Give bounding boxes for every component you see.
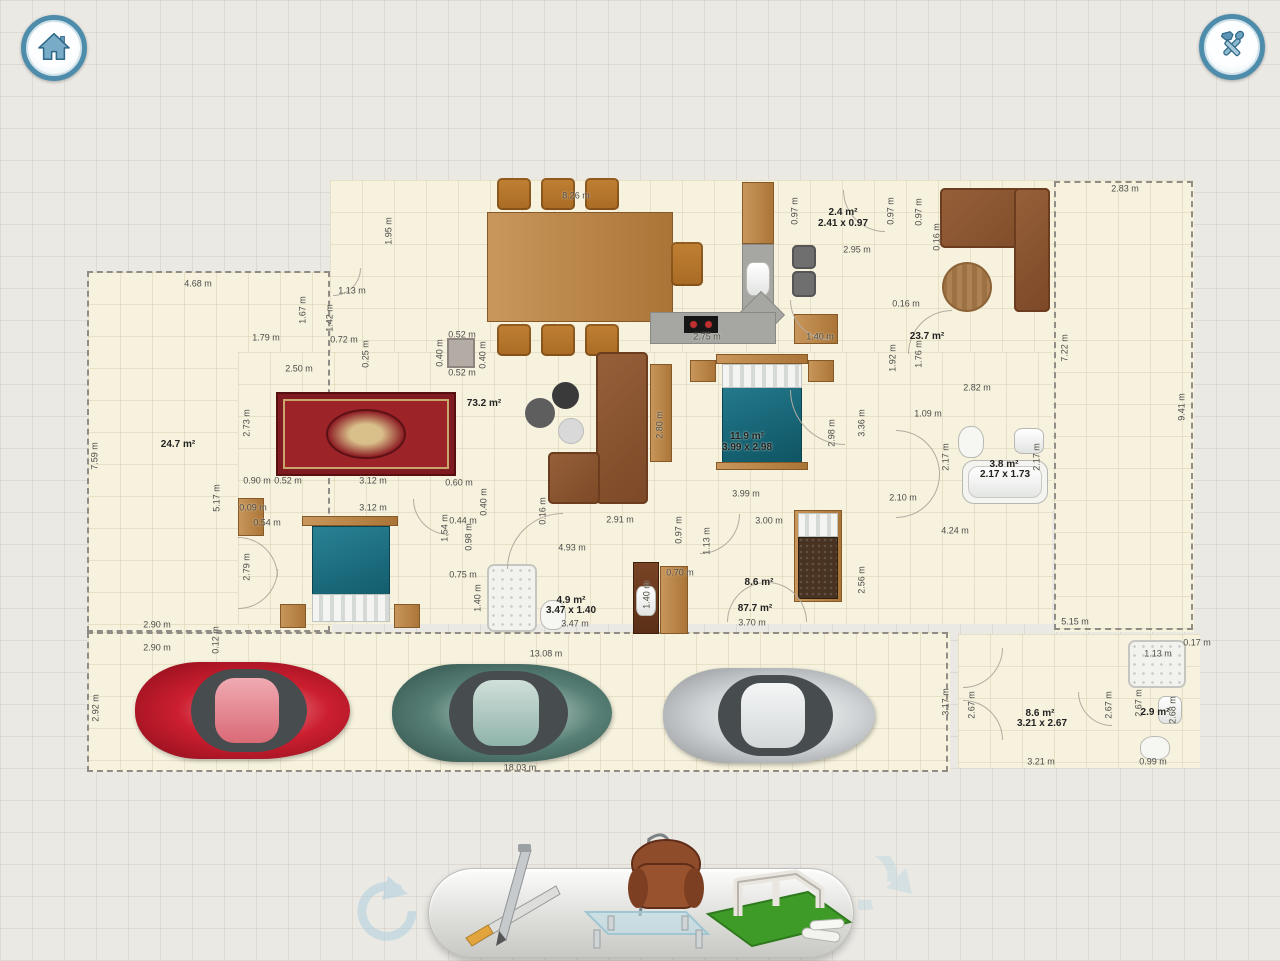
wall-opening — [505, 502, 563, 513]
dim-label: 2.80 m — [656, 411, 665, 439]
dim-label: 3.12 m — [359, 504, 387, 513]
dim-label: 0.12 m — [212, 626, 221, 654]
dim-label: 0.75 m — [449, 571, 477, 580]
home-button[interactable] — [21, 15, 87, 81]
dim-label: 7.59 m — [91, 442, 100, 470]
floorplan-app: { "header": { "home_icon": "home", "tool… — [0, 0, 1280, 960]
dim-label: 1.40 m — [474, 584, 483, 612]
area-label: 11.9 m² — [730, 432, 764, 442]
entry-sofa-right[interactable] — [1014, 188, 1050, 312]
dim-label: 0.97 m — [915, 198, 924, 226]
dining-chair[interactable] — [671, 242, 703, 286]
wall — [355, 502, 647, 513]
dim-label: 0.97 m — [675, 516, 684, 544]
dining-table[interactable] — [487, 212, 673, 322]
window-opening — [296, 622, 368, 632]
dim-label: 3.00 m — [755, 517, 783, 526]
pouf-light[interactable] — [558, 418, 584, 444]
dim-label: 0.52 m — [448, 331, 476, 340]
dim-label: 2.82 m — [963, 384, 991, 393]
hammer-screwdriver-icon — [1215, 28, 1249, 67]
dim-label: 0.99 m — [1139, 758, 1167, 767]
area-label: 3.21 x 2.67 — [1017, 719, 1067, 729]
wall-opening — [845, 390, 856, 430]
dim-label: 0.17 m — [1183, 639, 1211, 648]
dim-label: 0.40 m — [479, 341, 488, 369]
dim-label: 2.95 m — [843, 246, 871, 255]
wall-opening — [843, 232, 883, 242]
dim-label: 3.99 m — [732, 490, 760, 499]
redo-button[interactable] — [858, 856, 954, 957]
annex-shower[interactable] — [1128, 640, 1186, 688]
nightstand[interactable] — [808, 360, 834, 382]
floorplan-canvas[interactable]: 8.26 m1.95 m2.83 m4.68 m1.13 m1.67 m1.42… — [0, 0, 1280, 960]
dim-label: 2.75 m — [693, 333, 721, 342]
dim-label: 1.40 m — [806, 333, 834, 342]
car-roof — [473, 680, 539, 747]
dim-label: 0.60 m — [445, 479, 473, 488]
wall — [645, 345, 856, 356]
home-icon — [37, 29, 71, 68]
dim-label: 13.08 m — [530, 650, 563, 659]
dim-label: 1.79 m — [252, 334, 280, 343]
dining-chair[interactable] — [541, 324, 575, 356]
cooktop — [684, 316, 718, 333]
dim-label: 1.13 m — [703, 527, 712, 555]
area-label: 2.17 x 1.73 — [980, 470, 1030, 480]
round-rug[interactable] — [942, 262, 992, 312]
dim-label: 5.15 m — [1061, 618, 1089, 627]
single-bed-blanket — [798, 537, 838, 599]
dim-label: 1.13 m — [1144, 650, 1172, 659]
undo-button[interactable] — [340, 868, 426, 959]
dim-label: 0.72 m — [330, 336, 358, 345]
dim-label: 2.90 m — [143, 644, 171, 653]
wall-opening — [655, 503, 681, 514]
wall — [1197, 636, 1208, 775]
area-label: 24.7 m² — [161, 440, 195, 450]
toilet[interactable] — [958, 426, 984, 458]
dim-label: 0.09 m — [239, 504, 267, 513]
living-sofa-foot[interactable] — [548, 452, 600, 504]
dim-label: 1.54 m — [441, 514, 450, 542]
dim-label: 2.92 m — [92, 694, 101, 722]
area-label: 2.41 x 0.97 — [818, 219, 868, 229]
wall — [900, 397, 1056, 407]
dim-label: 2.98 m — [828, 419, 837, 447]
kitchen-cabinet-tall[interactable] — [742, 182, 774, 244]
car-silver[interactable] — [663, 668, 875, 763]
wall — [360, 170, 371, 269]
dim-label: 2.10 m — [889, 494, 917, 503]
dim-label: 0.16 m — [933, 223, 942, 251]
dim-label: 1.76 m — [915, 340, 924, 368]
dim-label: 1.92 m — [889, 344, 898, 372]
wall-opening — [333, 258, 359, 268]
dim-label: 2.50 m — [285, 365, 313, 374]
wall — [360, 170, 1060, 181]
dim-label: 2.73 m — [243, 409, 252, 437]
dim-label: 0.70 m — [666, 569, 694, 578]
undo-icon — [340, 941, 426, 958]
dim-label: 1.67 m — [299, 296, 308, 324]
wall — [952, 628, 1204, 639]
dim-label: 18.03 m — [504, 764, 537, 773]
dim-label: 1.95 m — [385, 217, 394, 245]
area-label: 3.47 x 1.40 — [546, 606, 596, 616]
kitchen-appliance[interactable] — [792, 245, 816, 269]
dim-label: 9.41 m — [1178, 393, 1187, 421]
redo-icon — [858, 939, 954, 956]
dim-label: 2.91 m — [606, 516, 634, 525]
oriental-rug[interactable] — [276, 392, 456, 476]
dim-label: 3.36 m — [858, 409, 867, 437]
dim-label: 7.22 m — [1061, 334, 1070, 362]
wall — [448, 488, 458, 513]
window-opening — [1049, 332, 1060, 378]
area-label: 87.7 m² — [738, 604, 772, 614]
house-model-icon — [690, 941, 858, 958]
wall — [897, 170, 907, 242]
tools-button[interactable] — [1199, 14, 1265, 80]
dim-label: 2.67 m — [968, 691, 977, 719]
dim-label: 2.56 m — [858, 566, 867, 594]
wall-opening — [952, 724, 963, 750]
dim-label: 1.09 m — [914, 410, 942, 419]
rug-medallion — [326, 409, 405, 459]
pouf-mid[interactable] — [525, 398, 555, 428]
dim-label: 0.52 m — [448, 369, 476, 378]
dim-label: 0.25 m — [362, 340, 371, 368]
wall — [950, 397, 960, 518]
dining-chair[interactable] — [497, 178, 531, 210]
dining-chair[interactable] — [497, 324, 531, 356]
wall-opening — [952, 676, 963, 702]
dim-label: 0.40 m — [480, 488, 489, 516]
dim-label: 2.83 m — [1111, 185, 1139, 194]
wall-opening — [700, 503, 736, 514]
area-label: 8.6 m² — [745, 578, 774, 588]
car-red[interactable] — [135, 662, 350, 759]
rooms-tool-button[interactable] — [690, 846, 858, 959]
kitchen-appliance[interactable] — [792, 271, 816, 297]
dim-label: 2.79 m — [243, 553, 252, 581]
terrace-right-outline — [1054, 181, 1193, 630]
dim-label: 0.16 m — [539, 497, 548, 525]
column — [447, 338, 475, 368]
area-label: 3.99 x 2.98 — [722, 443, 772, 453]
pouf-dark[interactable] — [552, 382, 579, 409]
dim-label: 2.67 m — [1105, 691, 1114, 719]
dim-label: 1.13 m — [338, 287, 366, 296]
dim-label: 0.97 m — [791, 197, 800, 225]
nightstand[interactable] — [690, 360, 716, 382]
single-bed-pillow — [798, 513, 838, 537]
dim-label: 2.68 m — [1169, 696, 1178, 724]
window-opening — [1017, 628, 1053, 639]
wall-opening — [412, 488, 446, 499]
dim-label: 4.93 m — [558, 544, 586, 553]
car-roof — [741, 683, 805, 748]
car-teal[interactable] — [392, 664, 612, 762]
wall — [228, 345, 332, 355]
bed-pillows — [722, 364, 802, 388]
dim-label: 2.17 m — [942, 443, 951, 471]
bed2-pillows — [312, 594, 390, 622]
area-label: 73.2 m² — [467, 399, 501, 409]
window-opening — [1049, 217, 1060, 249]
car-roof — [215, 678, 280, 744]
dim-label: 0.40 m — [436, 339, 445, 367]
dim-label: 3.21 m — [1027, 758, 1055, 767]
bed2-headboard — [302, 516, 398, 526]
dim-label: 1.42 m — [326, 304, 335, 332]
kitchen-sink — [746, 262, 770, 296]
wall-opening — [845, 468, 856, 512]
living-sofa-long[interactable] — [596, 352, 648, 504]
dim-label: 2.17 m — [1033, 443, 1042, 471]
dim-label: 0.16 m — [892, 300, 920, 309]
dim-label: 5.17 m — [213, 484, 222, 512]
area-label: 2.4 m² — [829, 208, 858, 218]
dim-label: 0.90 m — [243, 477, 271, 486]
dim-label: 0.97 m — [887, 197, 896, 225]
dim-label: 0.54 m — [253, 519, 281, 528]
dim-label: 4.24 m — [941, 527, 969, 536]
wall-opening — [228, 537, 238, 609]
dim-label: 0.98 m — [465, 523, 474, 551]
dim-label: 3.70 m — [738, 619, 766, 628]
dim-label: 2.90 m — [143, 621, 171, 630]
dim-label: 4.68 m — [184, 280, 212, 289]
dim-label: 3.17 m — [942, 688, 951, 716]
wall-opening — [1112, 692, 1123, 722]
dim-label: 0.52 m — [274, 477, 302, 486]
area-label: 2.9 m² — [1141, 708, 1170, 718]
bed-footboard — [716, 462, 808, 470]
dim-label: 3.47 m — [561, 620, 589, 629]
window-opening — [975, 508, 1027, 519]
dim-label: 1.40 m — [643, 581, 652, 609]
dim-label: 3.12 m — [359, 477, 387, 486]
area-label: 23.7 m² — [910, 332, 944, 342]
dim-label: 8.26 m — [562, 192, 590, 201]
